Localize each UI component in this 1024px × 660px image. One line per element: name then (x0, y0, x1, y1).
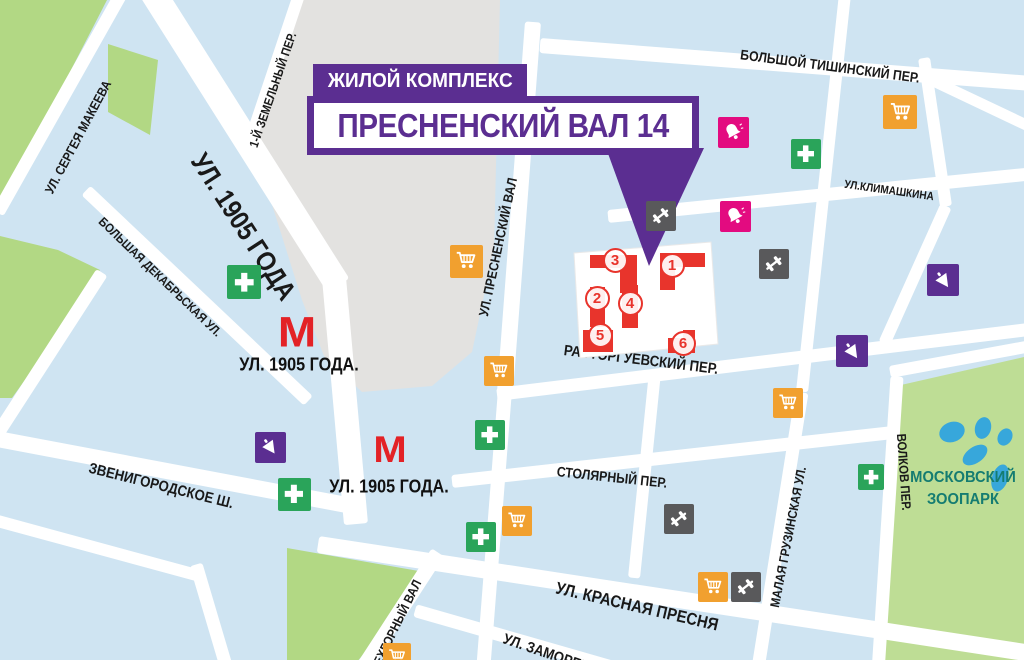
map-canvas: УЛ. СЕРГЕЯ МАКЕЕВАУЛ. 1905 ГОДА1-Й ЗЕМЕЛ… (0, 0, 1024, 660)
cart-icon (698, 572, 728, 602)
title-name-box: ПРЕСНЕНСКИЙ ВАЛ 14 (307, 96, 699, 155)
title-tag: ЖИЛОЙ КОМПЛЕКС (328, 70, 513, 93)
metro-icon: М (278, 311, 316, 353)
building-number-marker: 4 (618, 291, 643, 316)
metro-station-label: УЛ. 1905 ГОДА. (239, 355, 358, 376)
zoo-label-line2: ЗООПАРК (927, 491, 999, 509)
cross-icon (227, 265, 261, 299)
metro-icon: М (373, 432, 406, 469)
cart-icon (502, 506, 532, 536)
cross-icon (466, 522, 496, 552)
page-title: ПРЕСНЕНСКИЙ ВАЛ 14 (337, 107, 668, 145)
dumbbell-icon (759, 249, 789, 279)
top-icon (255, 432, 286, 463)
top-icon (836, 335, 868, 367)
dumbbell-icon (731, 572, 761, 602)
building-number-marker: 6 (671, 331, 696, 356)
cross-icon (475, 420, 505, 450)
title-tag-box: ЖИЛОЙ КОМПЛЕКС (313, 64, 527, 98)
building-number-marker: 1 (660, 253, 685, 278)
cart-icon (450, 245, 483, 278)
dumbbell-icon (646, 201, 676, 231)
bell-icon (720, 201, 751, 232)
cross-icon (858, 464, 884, 490)
cross-icon (791, 139, 821, 169)
building-number-marker: 2 (585, 286, 610, 311)
metro-station-label: УЛ. 1905 ГОДА. (329, 477, 448, 498)
top-icon (927, 264, 959, 296)
building-number-marker: 5 (588, 323, 613, 348)
cart-icon (383, 643, 411, 660)
dumbbell-icon (664, 504, 694, 534)
cart-icon (883, 95, 917, 129)
cart-icon (773, 388, 803, 418)
bell-icon (718, 117, 749, 148)
zoo-label-line1: МОСКОВСКИЙ (910, 469, 1016, 487)
cross-icon (278, 478, 311, 511)
cart-icon (484, 356, 514, 386)
building-number-marker: 3 (603, 248, 628, 273)
